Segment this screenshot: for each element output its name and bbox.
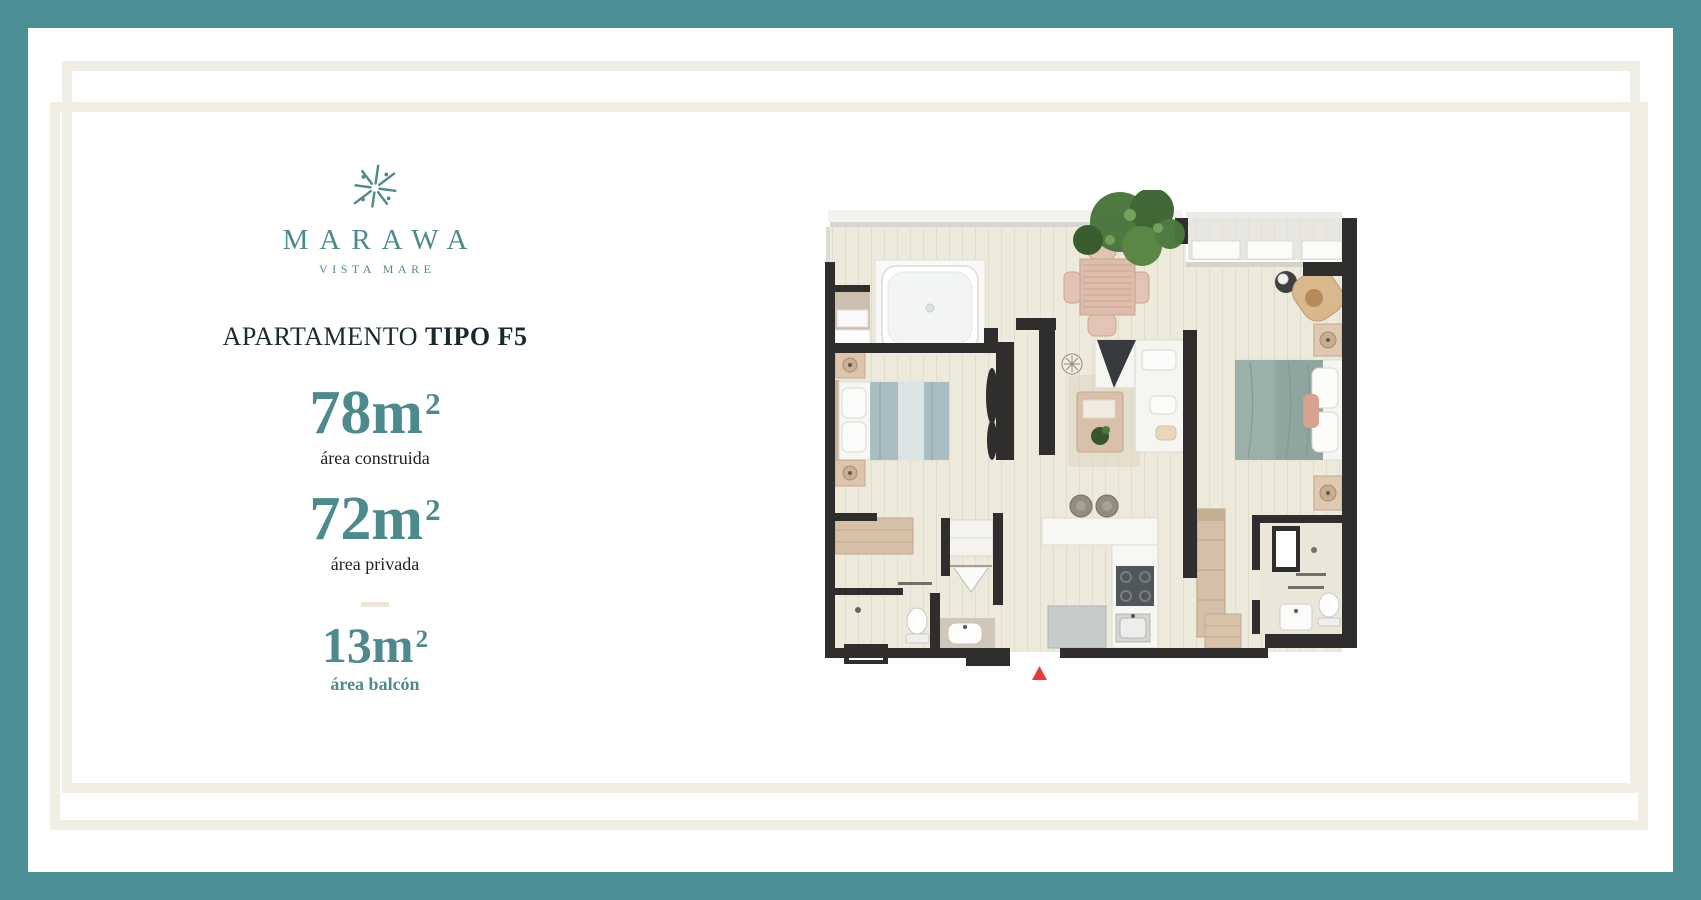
page-title: APARTAMENTO TIPO F5 [140,322,610,352]
floor-plan [820,190,1365,695]
towel-bar [1296,573,1326,576]
dresser [835,518,913,554]
brand-logo: MARAWA VISTA MARE [140,160,610,277]
area-built-label: área construida [140,448,610,469]
area-private-label: área privada [140,554,610,575]
dining-chair [1088,314,1116,336]
towel-bar [898,582,932,585]
counter [1042,518,1158,545]
brand-name: MARAWA [140,224,621,257]
divider-line [361,602,389,607]
brochure-page: MARAWA VISTA MARE APARTAMENTO TIPO F5 78… [0,0,1701,900]
appliance [1048,606,1106,648]
shelf-alcove [835,288,870,344]
area-private: 72m2 área privada [140,488,610,575]
terrace-benches [1192,241,1342,259]
area-balcony: 13m2 área balcón [140,620,610,695]
area-private-value: 72m2 [140,488,610,550]
title-regular: APARTAMENTO [223,322,418,351]
area-balcony-value: 13m2 [140,620,610,670]
area-built-value: 78m2 [140,382,610,444]
title-bold: TIPO F5 [425,322,527,351]
living-room [1062,340,1184,467]
jacuzzi [875,260,985,355]
starburst-icon [347,160,403,216]
dining-chair [1064,272,1081,303]
sink [1280,604,1312,630]
entrance-marker-icon [1032,666,1047,680]
brand-tagline: VISTA MARE [140,262,615,277]
toilet [907,608,927,634]
cabinet [1205,614,1241,648]
toilet [1319,593,1339,617]
info-panel: MARAWA VISTA MARE APARTAMENTO TIPO F5 78… [140,160,610,740]
area-balcony-label: área balcón [140,674,610,695]
area-built: 78m2 área construida [140,382,610,469]
